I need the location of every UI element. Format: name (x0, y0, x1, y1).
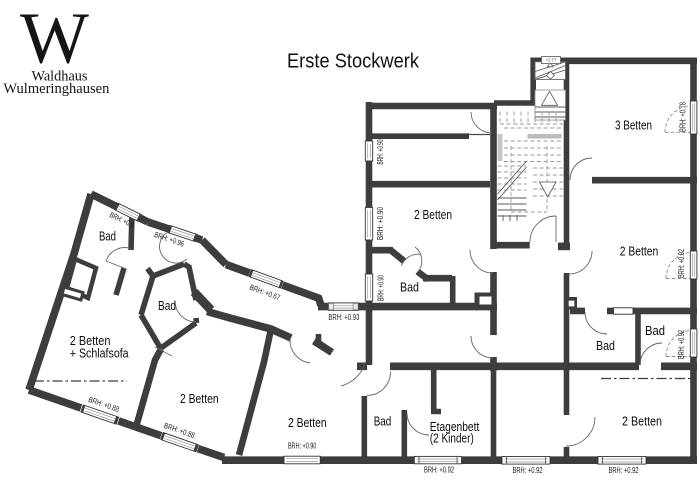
svg-text:2 Betten: 2 Betten (620, 244, 658, 259)
svg-text:BRH: +0.93: BRH: +0.93 (328, 313, 359, 322)
svg-text:BRH: +0.90: BRH: +0.90 (376, 139, 385, 164)
svg-text:BRH: +0.92: BRH: +0.92 (609, 466, 639, 475)
svg-text:Bad: Bad (596, 338, 615, 353)
svg-text:Bad: Bad (99, 229, 116, 244)
svg-text:+ Schlafsofa: + Schlafsofa (70, 346, 129, 361)
svg-text:BRH: +0.78: BRH: +0.78 (679, 102, 688, 132)
svg-text:3 Betten: 3 Betten (615, 118, 652, 133)
svg-text:Bad: Bad (158, 298, 176, 313)
svg-text:BRH: +0.92: BRH: +0.92 (677, 330, 686, 359)
svg-text:Bad: Bad (374, 413, 392, 428)
svg-text:W: W (20, 0, 89, 79)
svg-text:BRH: +0.90: BRH: +0.90 (288, 441, 317, 450)
svg-text:Erste Stockwerk: Erste Stockwerk (287, 50, 420, 73)
svg-text:2 Betten: 2 Betten (414, 207, 452, 222)
svg-text:+2.77: +2.77 (546, 58, 557, 63)
svg-text:Wulmeringhausen: Wulmeringhausen (3, 81, 110, 97)
svg-text:(2 Kinder): (2 Kinder) (430, 431, 474, 446)
svg-text:2 Betten: 2 Betten (622, 414, 662, 429)
svg-text:Bad: Bad (645, 323, 665, 338)
svg-text:BRH: +0.92: BRH: +0.92 (424, 466, 454, 475)
svg-text:Bad: Bad (400, 280, 419, 295)
svg-text:2 Betten: 2 Betten (288, 415, 327, 430)
svg-text:BRH: +0.92: BRH: +0.92 (677, 249, 686, 278)
svg-text:BRH: +0.90: BRH: +0.90 (376, 206, 385, 240)
svg-text:BRH: +0.90: BRH: +0.90 (377, 275, 386, 301)
svg-text:BRH: +0.92: BRH: +0.92 (513, 466, 543, 475)
svg-text:2 Betten: 2 Betten (180, 391, 219, 406)
